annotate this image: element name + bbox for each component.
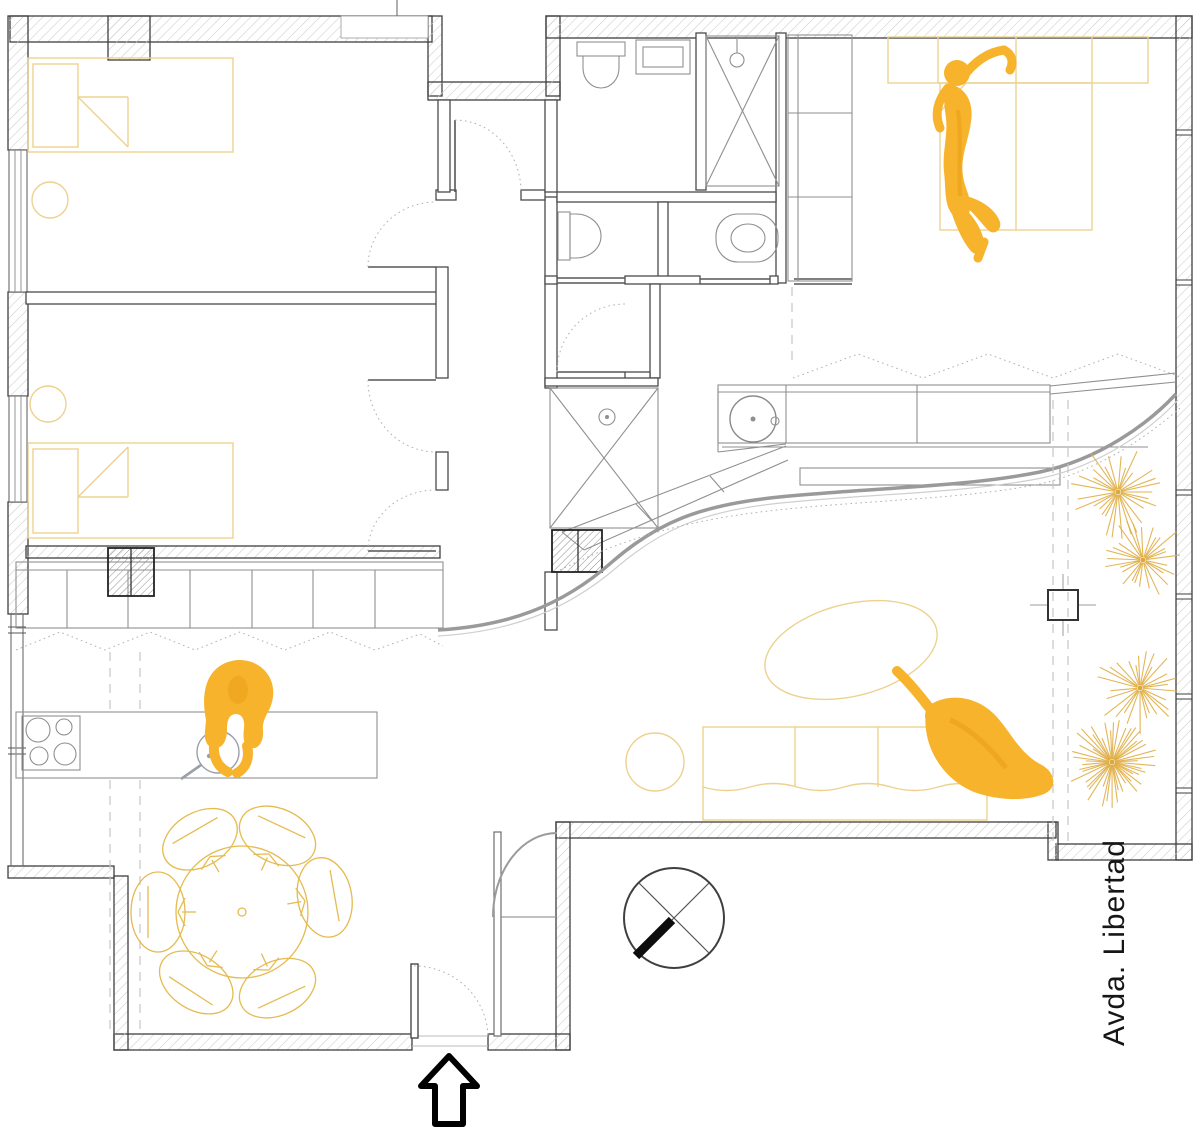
windows bbox=[8, 130, 1192, 1046]
dining-chair bbox=[152, 796, 248, 883]
window-bedroom1 bbox=[9, 150, 27, 292]
door-shower-room bbox=[557, 304, 625, 372]
person-on-sofa-icon bbox=[897, 671, 1053, 799]
wall-column bbox=[108, 16, 150, 60]
terrace-plants bbox=[1071, 451, 1180, 807]
fixtures bbox=[16, 35, 1183, 1036]
window-bedroom2 bbox=[9, 396, 27, 502]
person-lying-on-bed-icon bbox=[937, 50, 1012, 258]
door-bedroom2 bbox=[368, 380, 436, 452]
dining-chair bbox=[230, 794, 325, 877]
bidet-mid-b bbox=[716, 214, 778, 262]
floor-plan-drawing: Avda. Libertad bbox=[0, 0, 1200, 1133]
bed-bedroom3 bbox=[888, 37, 1148, 230]
toilet-top bbox=[577, 42, 625, 88]
column-bath bbox=[552, 530, 602, 572]
pouf bbox=[626, 733, 684, 791]
bed-bedroom1 bbox=[28, 58, 233, 152]
stove-burner bbox=[54, 743, 76, 765]
kitchen-cabinets bbox=[16, 562, 443, 628]
plant-icon bbox=[1098, 651, 1178, 734]
stove-burner bbox=[56, 719, 72, 735]
door-hall-kitchen bbox=[368, 490, 436, 551]
stool-bedroom2 bbox=[30, 386, 66, 422]
stove-burner bbox=[30, 747, 48, 765]
figures-group bbox=[204, 50, 1053, 799]
window-band-kitchen bbox=[8, 614, 26, 866]
curtain-bedroom3 bbox=[793, 354, 1183, 378]
dining-chair bbox=[287, 853, 358, 941]
floor-plan-page: Avda. Libertad bbox=[0, 0, 1200, 1133]
street-label: Avda. Libertad bbox=[1098, 839, 1131, 1046]
interior-walls bbox=[26, 33, 786, 630]
shower-mid bbox=[550, 388, 658, 528]
round-sink bbox=[718, 388, 786, 452]
entry-closet bbox=[493, 832, 557, 1036]
annotations: Avda. Libertad bbox=[421, 839, 1131, 1124]
furniture bbox=[28, 37, 1148, 820]
sink-top bbox=[636, 40, 690, 74]
stove-burner bbox=[26, 718, 50, 742]
stool-bedroom1 bbox=[32, 182, 68, 218]
entrance-arrow-icon bbox=[421, 1056, 477, 1124]
door-vestibule bbox=[455, 120, 521, 192]
north-compass-icon bbox=[624, 868, 724, 968]
column-terrace bbox=[1030, 574, 1096, 636]
dining-set bbox=[131, 794, 358, 1029]
shower-top bbox=[706, 36, 779, 186]
column-kitchen bbox=[108, 548, 154, 596]
wardrobe-bedroom3 bbox=[788, 35, 852, 281]
cabinet-row-b bbox=[722, 447, 1148, 485]
door-bedroom1 bbox=[368, 202, 436, 267]
door-entrance bbox=[411, 964, 488, 1038]
wall-niche bbox=[341, 16, 428, 38]
dining-chair bbox=[131, 872, 196, 952]
entrance-threshold bbox=[412, 1036, 488, 1046]
bed-bedroom2 bbox=[28, 443, 233, 538]
exterior-walls bbox=[8, 0, 1192, 1050]
dining-chair bbox=[230, 947, 325, 1030]
curtain-kitchen bbox=[16, 632, 443, 650]
plant-icon bbox=[1105, 521, 1179, 594]
plant-icon bbox=[1071, 720, 1156, 808]
toilet-mid-a bbox=[558, 212, 601, 260]
door-wc-b bbox=[700, 279, 770, 284]
cabinet-row-a bbox=[718, 373, 1176, 443]
door-wc-a bbox=[557, 278, 625, 283]
